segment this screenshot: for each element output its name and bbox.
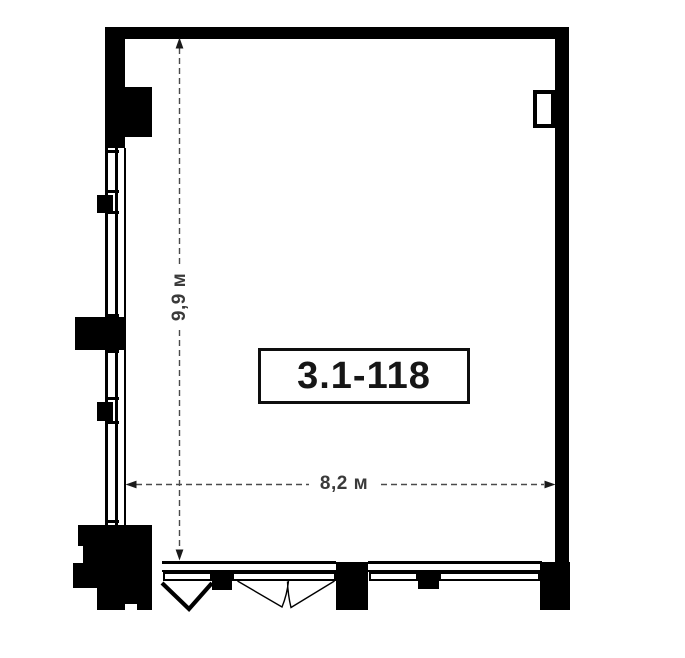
door-swing-entrance [162, 583, 212, 609]
unit-label: 3.1-118 [297, 357, 431, 395]
floor-plan: 9,9 м 8,2 м 3.1-118 [0, 0, 685, 658]
dimension-vertical-label: 9,9 м [168, 269, 192, 325]
arrow-left-icon [126, 481, 137, 489]
door-swing-right-leaf [288, 581, 335, 608]
plan-linework [0, 0, 685, 658]
arrow-right-icon [545, 481, 556, 489]
arrow-down-icon [176, 550, 184, 561]
door-swing-left-leaf [238, 581, 289, 607]
dimension-horizontal-label: 8,2 м [316, 472, 372, 496]
arrow-up-icon [176, 38, 184, 49]
unit-label-box[interactable]: 3.1-118 [258, 348, 470, 404]
